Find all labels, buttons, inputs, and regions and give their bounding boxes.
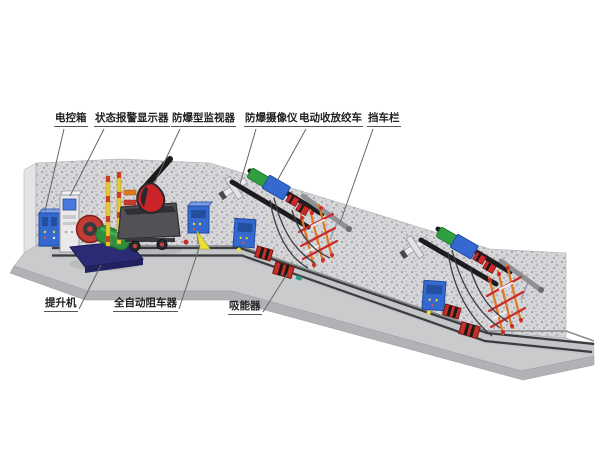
electric-control-box (39, 209, 63, 246)
callout-hoist: 提升机 (44, 297, 78, 312)
callout-auto-car-blocker: 全自动阻车器 (113, 297, 178, 312)
callout-status-alarm-display: 状态报警显示器 (94, 112, 170, 127)
callout-energy-absorber: 吸能器 (228, 300, 262, 315)
mine-incline-protection-diagram: 电控箱 状态报警显示器 防爆型监视器 防爆摄像仪 电动收放绞车 挡车栏 提升机 … (0, 0, 600, 450)
diagram-canvas (0, 0, 600, 450)
callout-electric-control-box: 电控箱 (54, 112, 88, 127)
wall-left-face (24, 163, 36, 253)
callout-car-blocking-barrier: 挡车栏 (367, 112, 401, 127)
callout-electric-winch: 电动收放绞车 (298, 112, 363, 127)
callout-explosion-proof-camera: 防爆摄像仪 (244, 112, 299, 127)
leader-electric-winch (277, 129, 306, 181)
callout-explosion-proof-monitor: 防爆型监视器 (171, 112, 236, 127)
